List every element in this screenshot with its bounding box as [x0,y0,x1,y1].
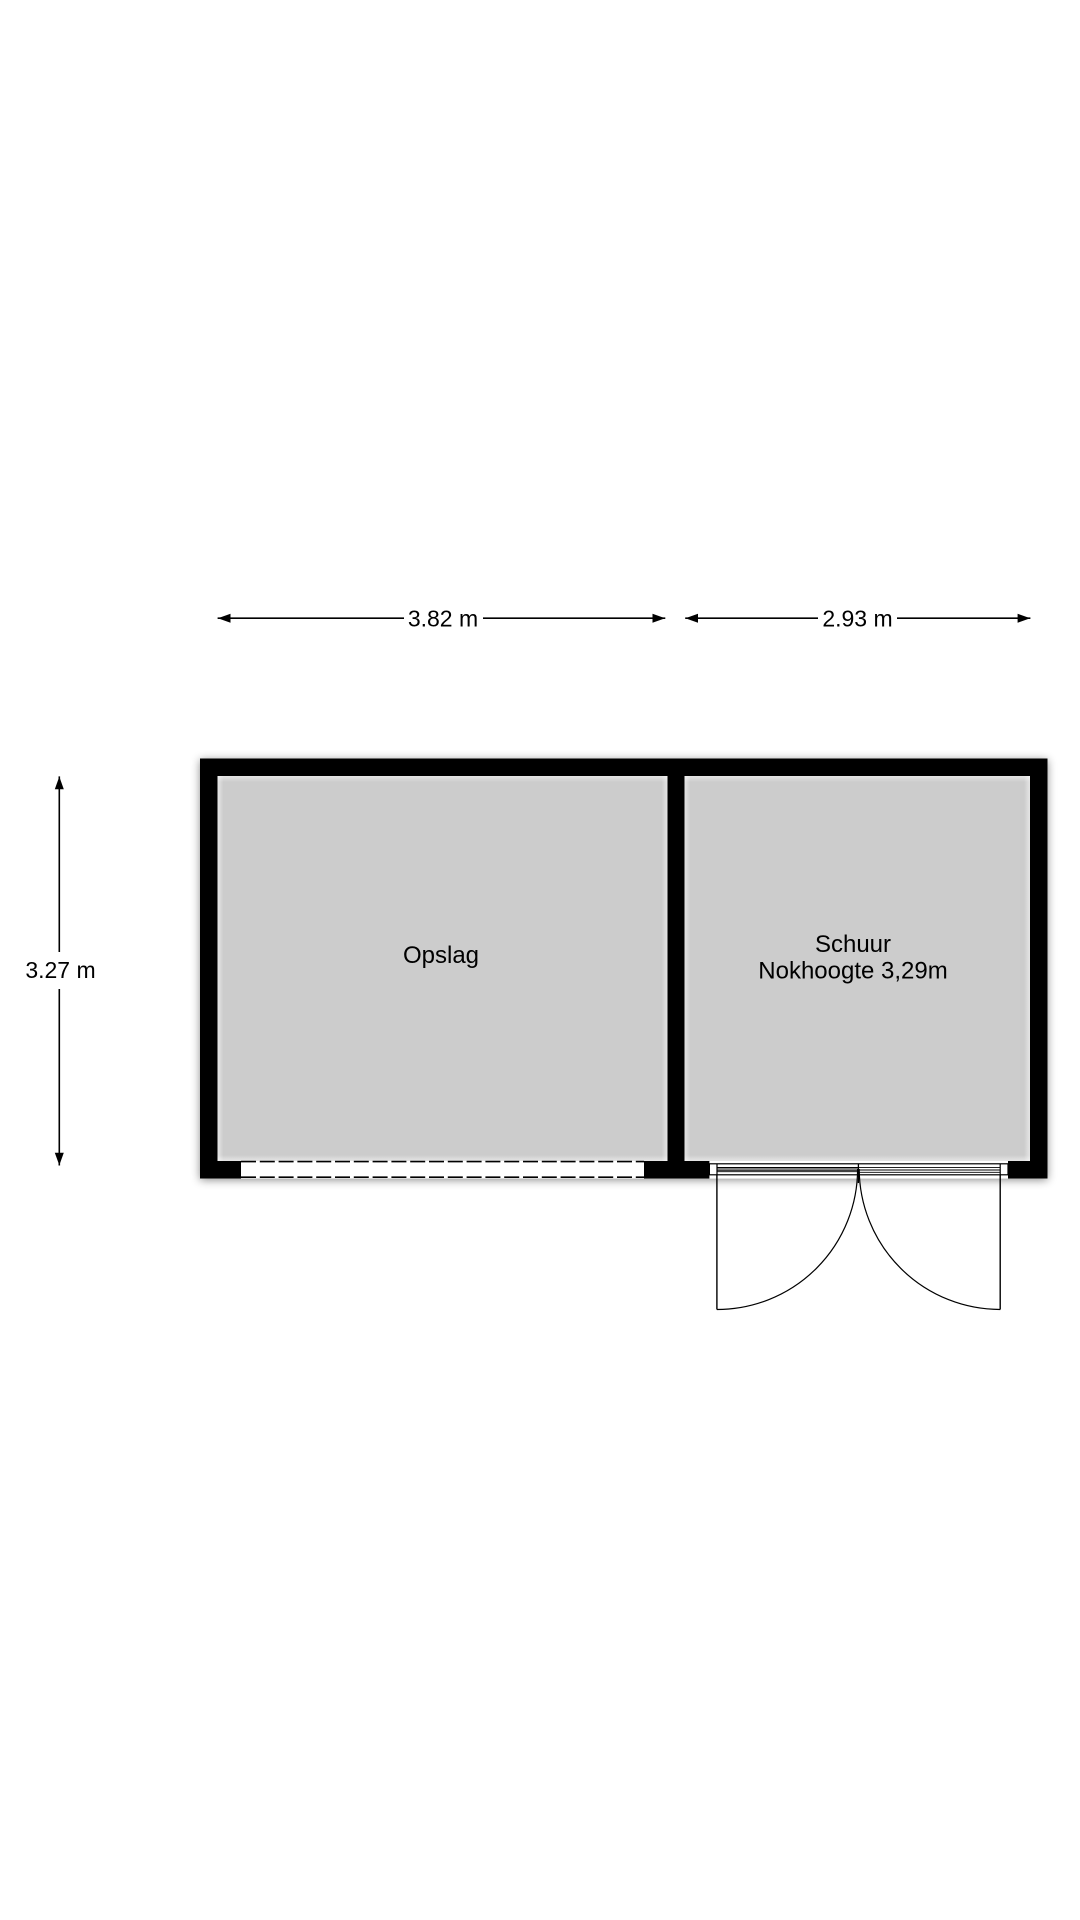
svg-text:Schuur: Schuur [815,931,891,958]
svg-text:Nokhoogte 3,29m: Nokhoogte 3,29m [758,958,947,985]
svg-text:3.27 m: 3.27 m [25,957,95,983]
svg-text:3.82 m: 3.82 m [408,606,478,632]
svg-text:Opslag: Opslag [403,942,479,969]
svg-text:2.93 m: 2.93 m [822,606,892,632]
